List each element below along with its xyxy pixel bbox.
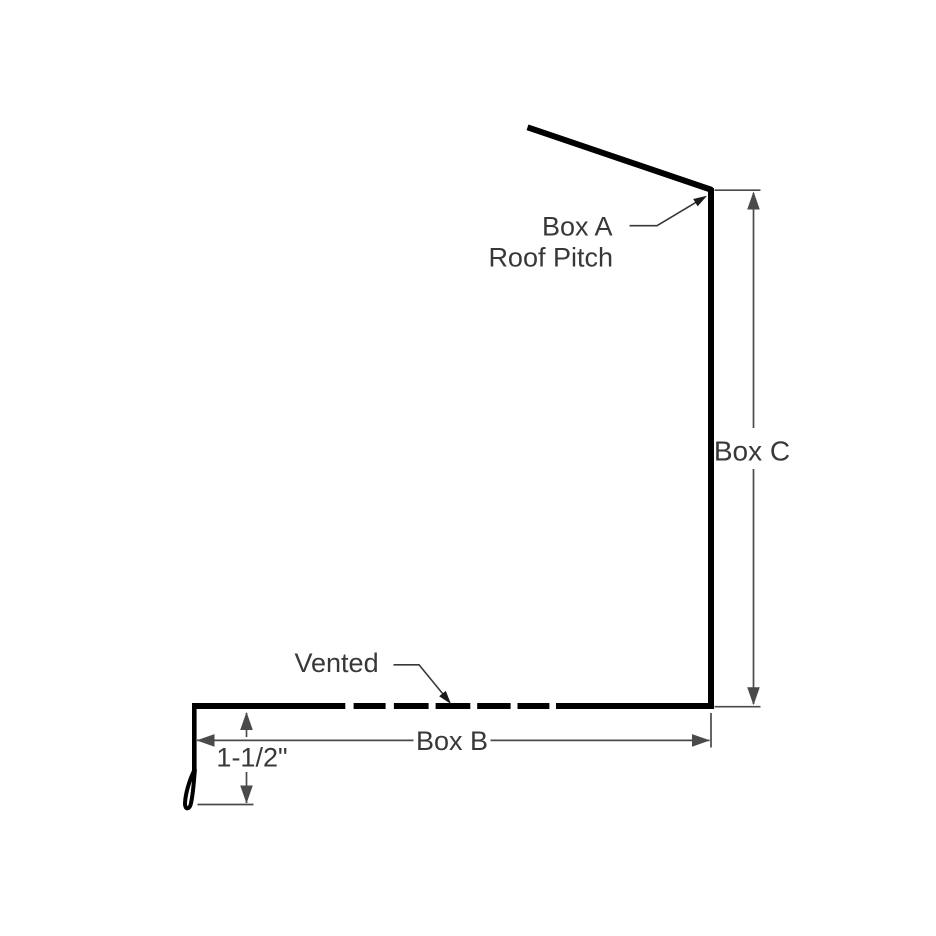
svg-text:Box C: Box C [714, 436, 790, 467]
svg-text:1-1/2": 1-1/2" [216, 743, 287, 773]
svg-text:Box A: Box A [542, 212, 613, 242]
svg-text:Roof Pitch: Roof Pitch [488, 243, 613, 273]
svg-text:Box B: Box B [416, 726, 488, 756]
svg-text:Vented: Vented [295, 648, 379, 678]
